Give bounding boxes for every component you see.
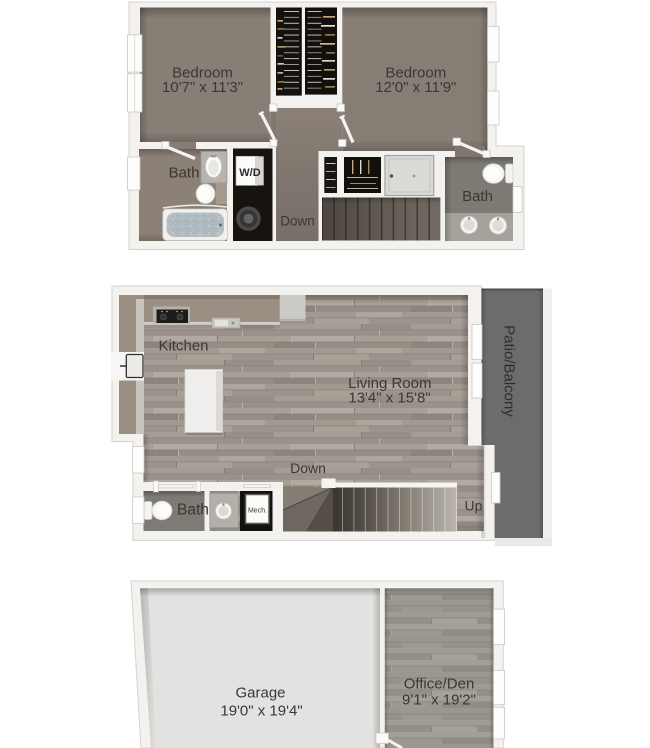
svg-text:Down: Down <box>280 214 315 229</box>
svg-text:Garage: Garage <box>235 685 285 702</box>
svg-text:Patio/Balcony: Patio/Balcony <box>501 325 518 417</box>
svg-text:13'4" x 15'8": 13'4" x 15'8" <box>348 390 430 407</box>
svg-text:Office/Den: Office/Den <box>404 676 475 693</box>
svg-text:Bath: Bath <box>462 188 493 205</box>
svg-text:Bath: Bath <box>169 165 200 182</box>
svg-text:Mech.: Mech. <box>248 508 267 515</box>
svg-text:10'7" x 11'3": 10'7" x 11'3" <box>162 79 243 96</box>
svg-text:Kitchen: Kitchen <box>158 338 208 355</box>
svg-text:Bath: Bath <box>177 502 209 519</box>
svg-text:19'0" x 19'4": 19'0" x 19'4" <box>220 703 302 720</box>
svg-text:W/D: W/D <box>239 167 260 179</box>
svg-text:Up: Up <box>465 498 483 514</box>
svg-text:Down: Down <box>290 460 326 476</box>
svg-text:9'1" x 19'2": 9'1" x 19'2" <box>402 691 476 708</box>
svg-text:12'0" x 11'9": 12'0" x 11'9" <box>375 79 456 96</box>
